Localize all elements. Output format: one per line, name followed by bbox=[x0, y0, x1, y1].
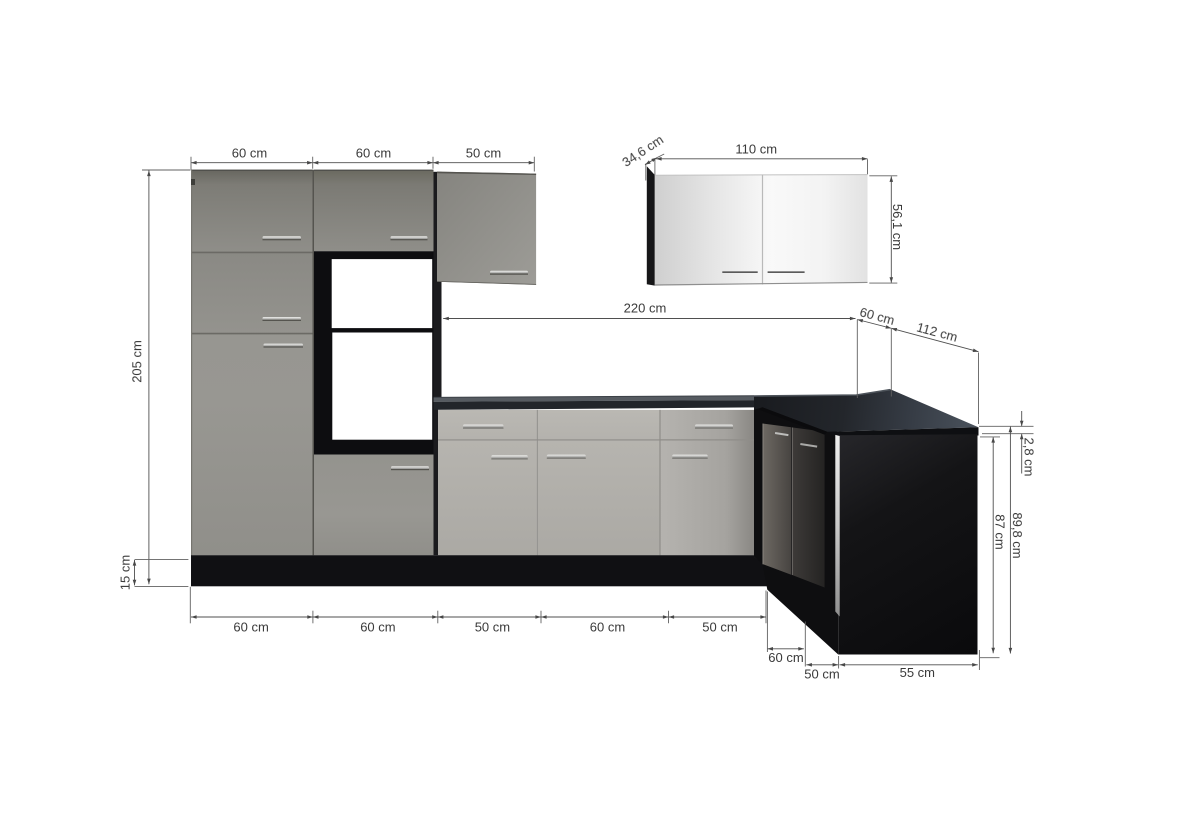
svg-text:60 cm: 60 cm bbox=[590, 620, 625, 635]
svg-text:15 cm: 15 cm bbox=[118, 555, 133, 590]
svg-text:60 cm: 60 cm bbox=[768, 650, 803, 665]
svg-text:60 cm: 60 cm bbox=[356, 145, 391, 160]
svg-text:89,8 cm: 89,8 cm bbox=[1010, 512, 1025, 558]
svg-text:56,1 cm: 56,1 cm bbox=[890, 204, 905, 250]
svg-text:50 cm: 50 cm bbox=[466, 145, 501, 160]
svg-text:2,8 cm: 2,8 cm bbox=[1022, 437, 1037, 476]
svg-text:205 cm: 205 cm bbox=[129, 340, 144, 383]
svg-text:110 cm: 110 cm bbox=[735, 141, 777, 156]
svg-text:50 cm: 50 cm bbox=[475, 620, 510, 635]
svg-text:60 cm: 60 cm bbox=[232, 145, 267, 160]
svg-text:87 cm: 87 cm bbox=[993, 514, 1008, 549]
svg-text:60 cm: 60 cm bbox=[360, 620, 395, 635]
svg-text:55 cm: 55 cm bbox=[900, 665, 935, 680]
svg-text:50 cm: 50 cm bbox=[804, 666, 839, 681]
svg-text:60 cm: 60 cm bbox=[233, 620, 268, 635]
svg-text:220 cm: 220 cm bbox=[624, 301, 667, 316]
svg-text:50 cm: 50 cm bbox=[702, 620, 737, 635]
